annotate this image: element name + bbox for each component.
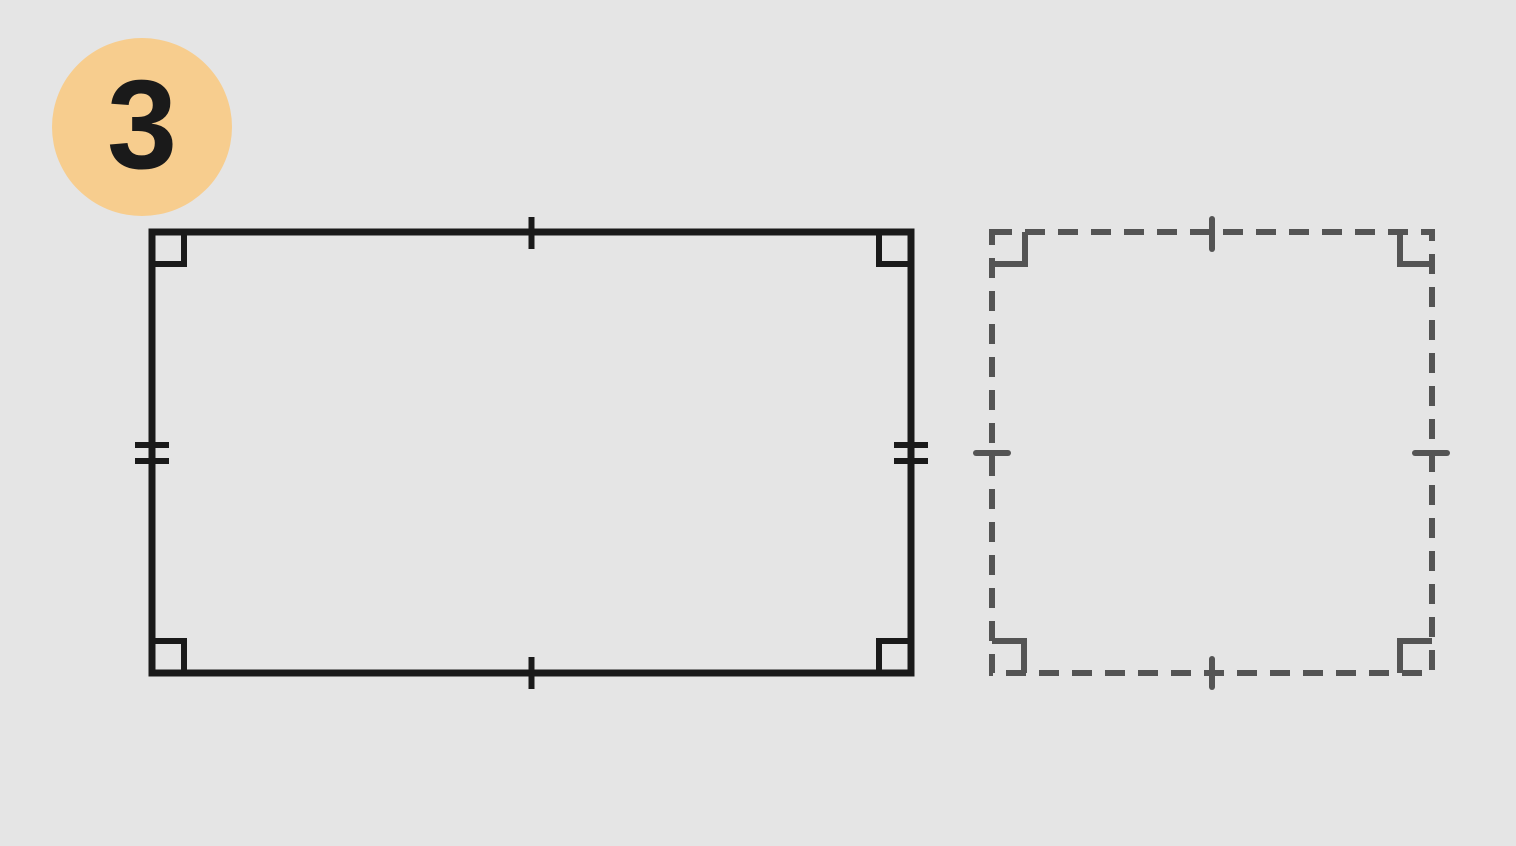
right-angle-mark-top-left — [992, 232, 1025, 264]
right-angle-mark-bottom-left — [992, 641, 1024, 673]
right-angle-mark-bottom-right — [879, 641, 911, 673]
right-angle-mark-bottom-left — [152, 641, 184, 673]
right-angle-mark-top-right — [1400, 232, 1432, 264]
right-angle-mark-top-left — [152, 232, 184, 264]
solid-rectangle-outline — [152, 232, 911, 673]
right-angle-mark-bottom-right — [1400, 641, 1432, 673]
dashed-square-outline — [992, 232, 1432, 673]
solid-rectangle-shape[interactable] — [135, 217, 928, 689]
right-angle-mark-top-right — [879, 232, 911, 264]
worksheet-canvas: 3 — [0, 0, 1516, 846]
dashed-square-target[interactable] — [976, 219, 1447, 687]
geometry-figure — [0, 0, 1516, 846]
